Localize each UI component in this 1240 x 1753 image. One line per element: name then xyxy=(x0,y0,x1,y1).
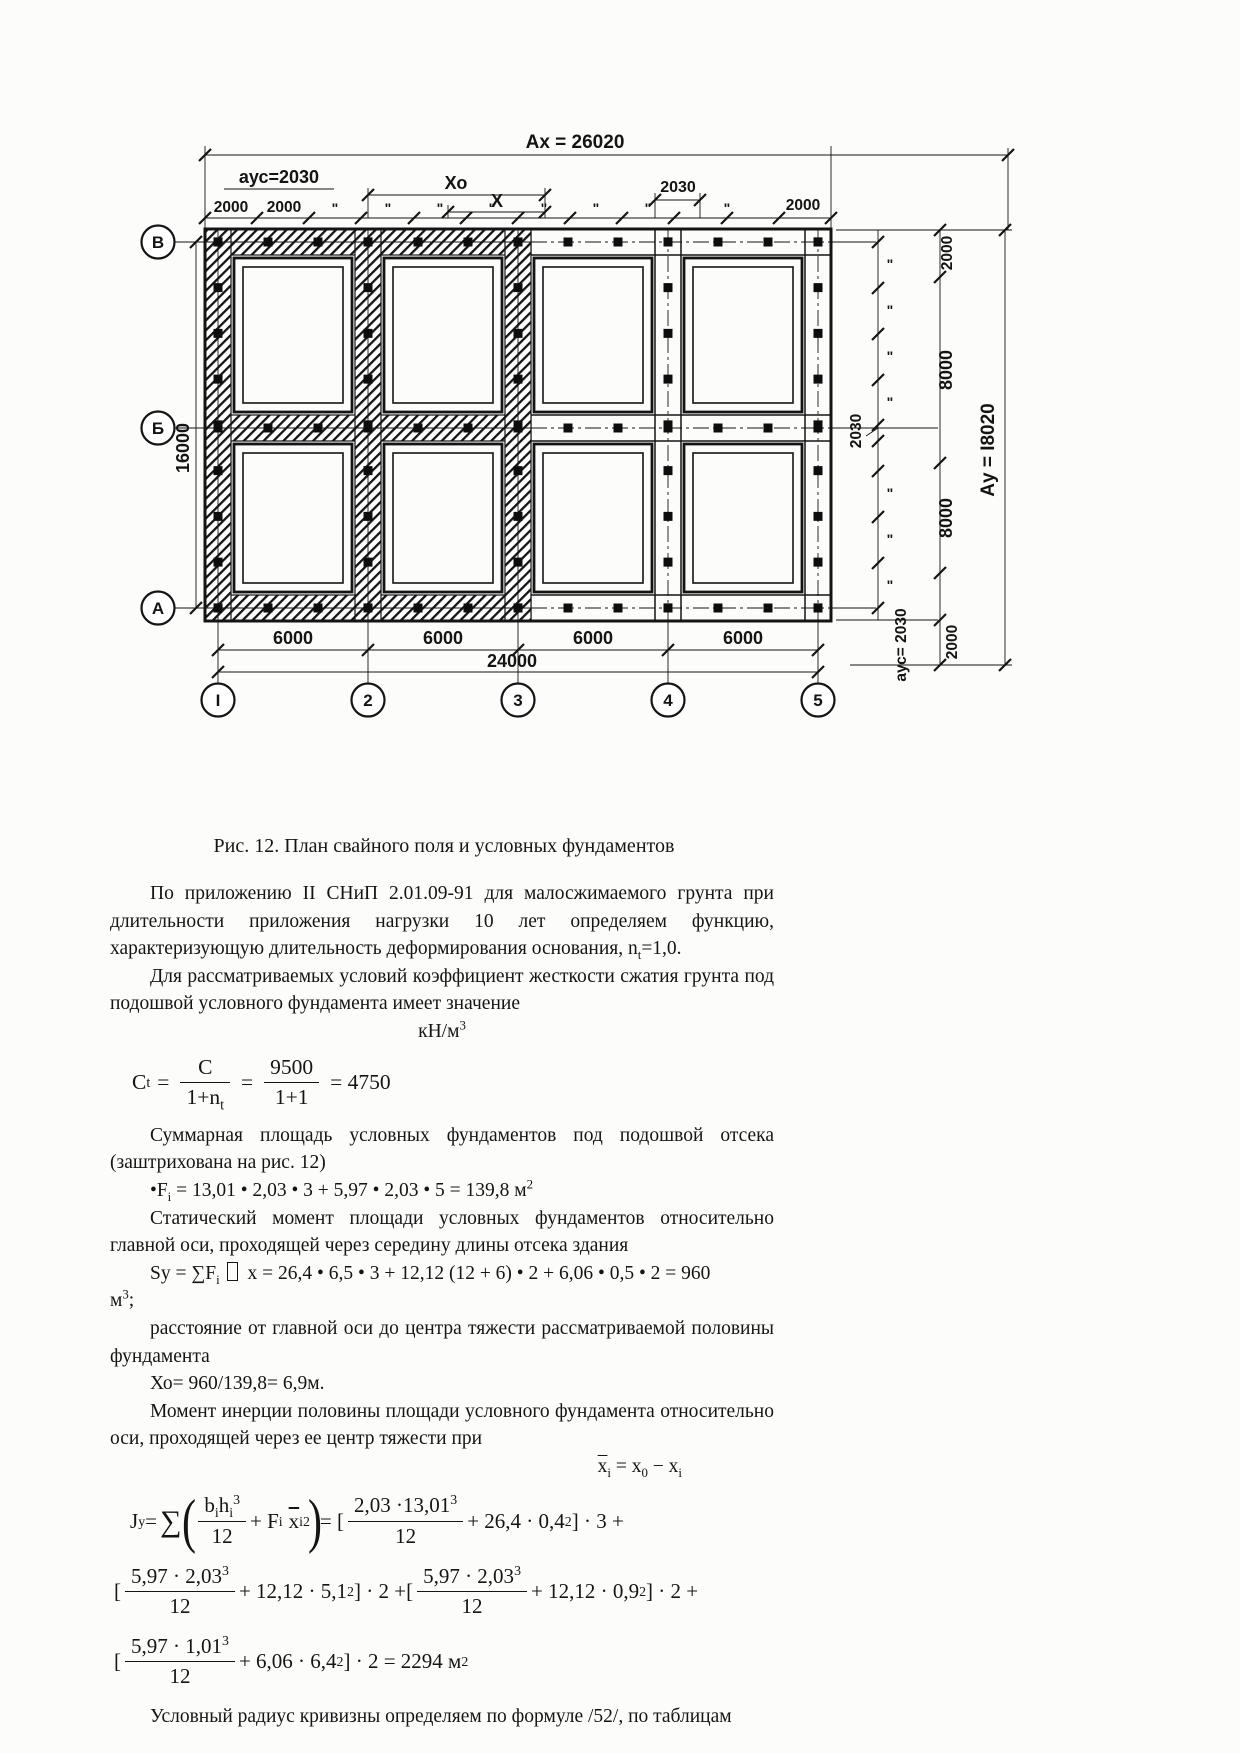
document-page: Ах = 26020 аус=2030 Хо Х 2030 2000 2000 … xyxy=(0,0,1240,1731)
dim-ay-total: Ау = I8020 xyxy=(978,403,999,497)
text-column: По приложению II СНиП 2.01.09-91 для мал… xyxy=(110,880,774,1731)
svg-text:": " xyxy=(887,394,894,410)
dim-2000-right: 2000 xyxy=(786,197,820,214)
paragraph-area: Суммарная площадь условных фундаментов п… xyxy=(110,1122,774,1177)
svg-text:": " xyxy=(887,531,894,547)
figure-caption: Рис. 12. План свайного поля и условных ф… xyxy=(104,835,784,858)
svg-text:": " xyxy=(887,256,894,272)
axis-col-2: 2 xyxy=(363,691,372,710)
svg-text:": " xyxy=(887,577,894,593)
formula-sy-tail: м3; xyxy=(110,1287,774,1315)
dim-r2000-top: 2000 xyxy=(939,236,956,270)
formula-sy: Sy = ∑Fi x = 26,4 • 6,5 • 3 + 12,12 (12 … xyxy=(110,1260,774,1288)
dim-bay: 6000 xyxy=(423,628,463,648)
ditto-marks-right: "" "" "" " xyxy=(887,256,894,593)
dim-ays-top: аус=2030 xyxy=(239,167,319,187)
dim-bay: 6000 xyxy=(273,628,313,648)
formula-jy-line2: [ 5,97 · 2,03312 + 12,12 · 5,12 ] · 2 + … xyxy=(114,1563,774,1621)
dim-bay: 6000 xyxy=(573,628,613,648)
axis-col-5: 5 xyxy=(813,691,822,710)
paragraph-static-moment: Статический момент площади условных фунд… xyxy=(110,1205,774,1260)
formula-jy-line3: [ 5,97 · 1,01312 + 6,06 · 6,42 ] · 2 = 2… xyxy=(114,1633,774,1691)
dim-ays-bottom: аус= 2030 xyxy=(893,608,910,681)
svg-text:": " xyxy=(385,200,392,216)
formula-fi: •Fi = 13,01 • 2,03 • 3 + 5,97 • 2,03 • 5… xyxy=(110,1177,774,1205)
paragraph-inertia: Момент инерции половины площади условног… xyxy=(110,1398,774,1453)
ditto-marks-top: "" "" "" "" xyxy=(332,200,731,216)
paragraph-distance: расстояние от главной оси до центра тяже… xyxy=(110,1315,774,1370)
dim-2030-mid: 2030 xyxy=(848,414,865,448)
axis-col-3: 3 xyxy=(513,691,522,710)
svg-text:": " xyxy=(887,485,894,501)
missing-glyph-box xyxy=(227,1262,238,1281)
svg-text:": " xyxy=(593,200,600,216)
dim-total-x: 24000 xyxy=(487,651,537,671)
paragraph-stiffness: Для рассматриваемых условий коэффициент … xyxy=(110,963,774,1018)
dim-2000: 2000 xyxy=(267,199,301,216)
axis-col-4: 4 xyxy=(663,691,673,710)
unit-line: кН/м3 xyxy=(110,1018,774,1046)
svg-text:": " xyxy=(489,200,496,216)
svg-text:": " xyxy=(332,200,339,216)
dim-16000: 16000 xyxy=(173,423,193,473)
dim-2000: 2000 xyxy=(214,199,248,216)
dim-ax-total: Ах = 26020 xyxy=(526,132,625,153)
figure-plan: Ах = 26020 аус=2030 Хо Х 2030 2000 2000 … xyxy=(0,0,1240,738)
axis-col-1: I xyxy=(216,691,221,710)
dim-r2000-bot: 2000 xyxy=(944,625,961,659)
formula-ct: Ct = C1+nt = 95001+1 = 4750 xyxy=(132,1054,774,1112)
svg-text:": " xyxy=(437,200,444,216)
formula-jy-line1: Jy = ∑ ( bihi312 + Fi xi2 ) = [ 2,03 ·13… xyxy=(130,1492,774,1550)
svg-text:": " xyxy=(724,200,731,216)
formula-xo: Хо= 960/139,8= 6,9м. xyxy=(110,1370,774,1398)
dim-xo: Хо xyxy=(445,173,468,193)
svg-text:": " xyxy=(645,200,652,216)
dim-bay: 6000 xyxy=(723,628,763,648)
paragraph-radius: Условный радиус кривизны определяем по ф… xyxy=(110,1703,774,1731)
svg-text:": " xyxy=(887,302,894,318)
dim-r8000-lo: 8000 xyxy=(936,498,956,538)
paragraph-snip: По приложению II СНиП 2.01.09-91 для мал… xyxy=(110,880,774,963)
dim-r8000-up: 8000 xyxy=(936,350,956,390)
axis-row-v: В xyxy=(152,233,164,252)
strip-edges xyxy=(531,229,831,621)
axis-row-b: Б xyxy=(152,419,164,438)
svg-text:": " xyxy=(887,348,894,364)
axis-row-a: А xyxy=(152,599,164,618)
dim-top-2030: 2030 xyxy=(660,179,696,196)
formula-xbar: xi = x0 − xi xyxy=(110,1453,774,1481)
svg-text:": " xyxy=(541,200,548,216)
